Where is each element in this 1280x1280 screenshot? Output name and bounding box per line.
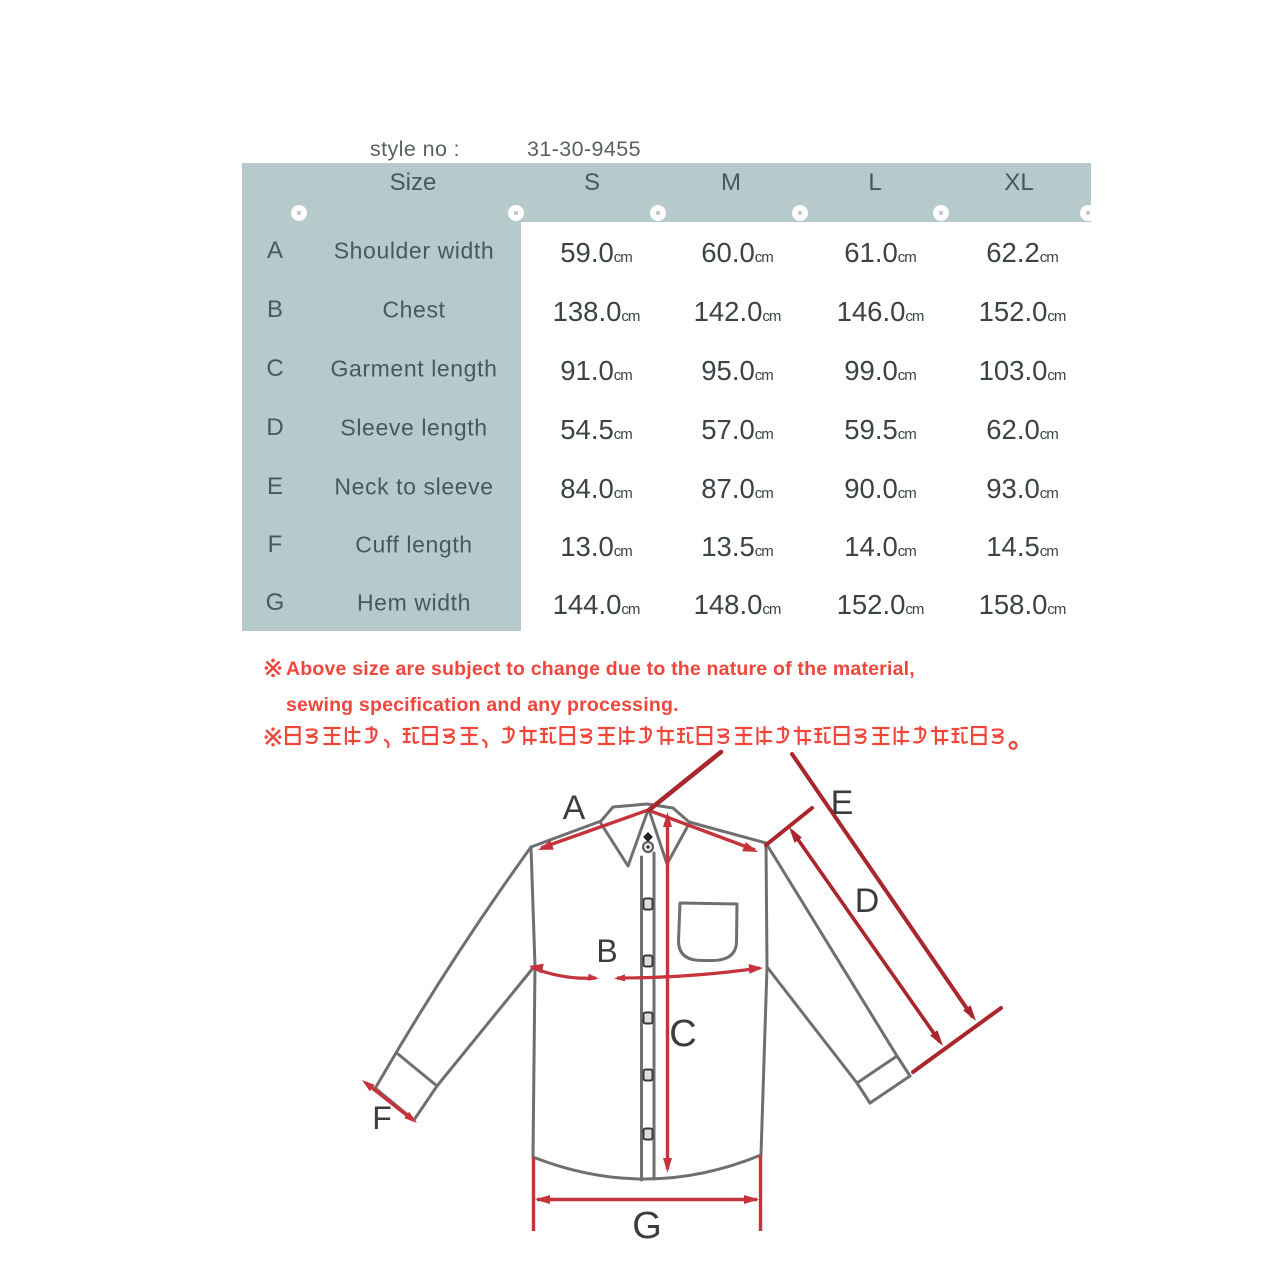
svg-text:G: G <box>632 1205 662 1247</box>
svg-text:E: E <box>831 784 854 822</box>
svg-text:B: B <box>596 933 617 969</box>
svg-text:A: A <box>563 789 586 827</box>
svg-text:F: F <box>372 1100 392 1136</box>
svg-text:D: D <box>855 882 880 920</box>
svg-text:C: C <box>669 1013 696 1055</box>
